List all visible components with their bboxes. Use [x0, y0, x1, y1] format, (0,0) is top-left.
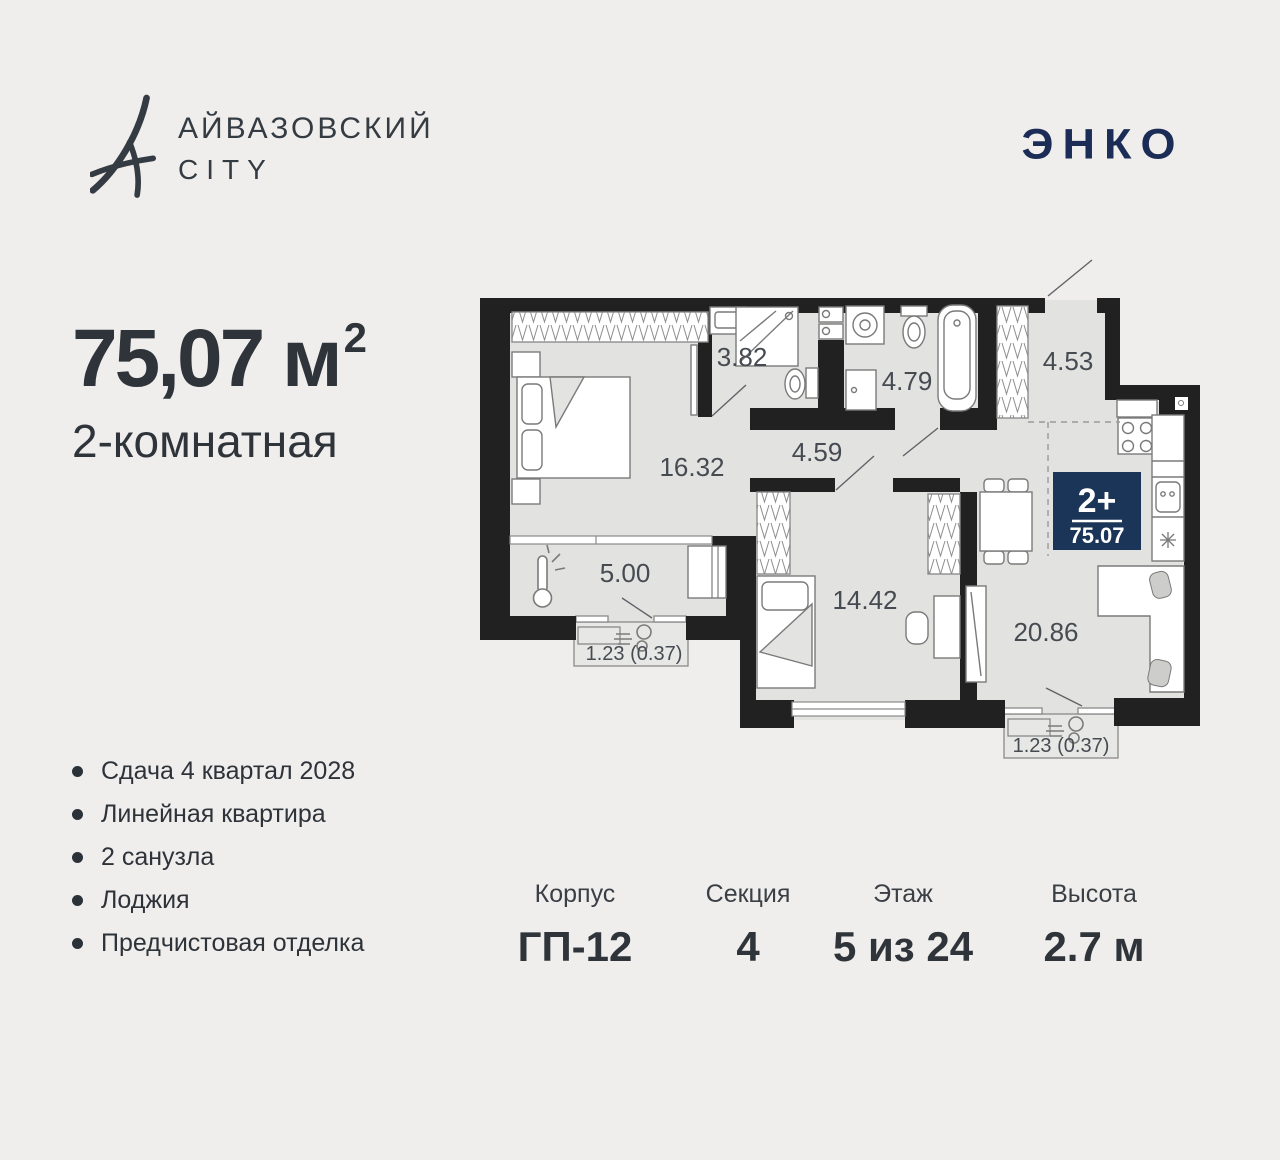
area-headline: 75,07 м2 [72, 312, 363, 406]
spec-label: Секция [706, 880, 791, 909]
spec-building: Корпус ГП-12 [518, 880, 633, 971]
room-label-bath-big: 4.79 [882, 366, 933, 396]
vent-shaft [1175, 397, 1188, 410]
badge-area: 75.07 [1069, 523, 1124, 548]
spec-label: Этаж [833, 880, 973, 909]
brand-name: АЙВАЗОВСКИЙ [178, 112, 434, 146]
feature-label: Предчистовая отделка [101, 929, 364, 958]
balcony-right-label: 1.23 (0.37) [1013, 735, 1110, 757]
room-label-kitchen-living: 20.86 [1013, 617, 1078, 647]
room-label-bedroom2: 14.42 [832, 585, 897, 615]
spec-section: Секция 4 [706, 880, 791, 971]
area-value: 75,07 [72, 313, 262, 404]
feature-item: Сдача 4 квартал 2028 [72, 750, 364, 793]
floor-plan: 16.32 3.82 4.79 4.53 4.59 5.00 14.42 20.… [470, 240, 1210, 780]
room-label-corridor: 4.59 [792, 437, 843, 467]
room-label-bedroom: 16.32 [659, 452, 724, 482]
spec-value: 4 [706, 923, 791, 971]
feature-label: Сдача 4 квартал 2028 [101, 757, 355, 786]
bullet-dot [72, 938, 83, 949]
features-list: Сдача 4 квартал 2028 Линейная квартира 2… [72, 750, 364, 965]
feature-label: Линейная квартира [101, 800, 326, 829]
spec-label: Корпус [518, 880, 633, 909]
spec-floor: Этаж 5 из 24 [833, 880, 973, 971]
developer-logo: ЭНКО [998, 119, 1208, 168]
area-unit: м [282, 313, 340, 404]
dining-set [980, 479, 1032, 564]
brand-text: АЙВАЗОВСКИЙ CITY [178, 112, 434, 186]
room-label-hallway: 4.53 [1043, 346, 1094, 376]
bullet-dot [72, 895, 83, 906]
feature-label: Лоджия [101, 886, 190, 915]
area-sup: 2 [344, 314, 367, 361]
feature-item: Лоджия [72, 879, 364, 922]
room-label-loggia: 5.00 [600, 558, 651, 588]
feature-label: 2 санузла [101, 843, 214, 872]
feature-item: Линейная квартира [72, 793, 364, 836]
balcony-left-label: 1.23 (0.37) [586, 643, 683, 665]
spec-value: 5 из 24 [833, 923, 973, 971]
fridge-star-icon [1160, 532, 1176, 548]
bullet-dot [72, 809, 83, 820]
feature-item: Предчистовая отделка [72, 922, 364, 965]
spec-height: Высота 2.7 м [1043, 880, 1144, 971]
brand-a-icon [90, 94, 156, 200]
feature-item: 2 санузла [72, 836, 364, 879]
spec-label: Высота [1043, 880, 1144, 909]
badge-rooms: 2+ [1078, 482, 1117, 520]
bullet-dot [72, 766, 83, 777]
brand-logo: АЙВАЗОВСКИЙ CITY [90, 94, 434, 200]
plan-badge: 2+ 75.07 [1053, 472, 1141, 550]
bullet-dot [72, 852, 83, 863]
apartment-card: АЙВАЗОВСКИЙ CITY ЭНКО 75,07 м2 2-комнатн… [0, 0, 1280, 1160]
brand-city: CITY [178, 154, 434, 186]
spec-value: 2.7 м [1043, 923, 1144, 971]
spec-value: ГП-12 [518, 923, 633, 971]
apartment-type: 2-комнатная [72, 414, 338, 468]
room-label-bath-small: 3.82 [717, 342, 768, 372]
